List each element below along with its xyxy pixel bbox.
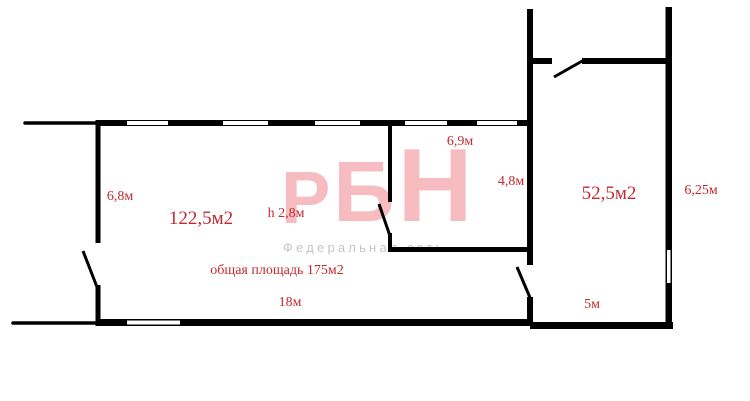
floorplan-canvas: Р Б Н Федеральная сеть	[0, 0, 750, 401]
label-room-right-area: 52,5м2	[582, 183, 637, 205]
label-room-main-width: 6,8м	[107, 189, 133, 205]
exterior-walls	[96, 7, 674, 329]
label-room-main-length: 18м	[279, 295, 302, 311]
extension-lines	[13, 123, 98, 323]
label-room-right-width: 5м	[584, 297, 600, 313]
label-total-area: общая площадь 175м2	[210, 263, 343, 279]
label-room-mid-depth: 4,8м	[498, 174, 524, 190]
label-ceiling-height: h 2,8м	[268, 206, 305, 222]
label-room-mid-width: 6,9м	[447, 134, 473, 150]
label-room-main-area: 122,5м2	[169, 208, 233, 230]
label-room-right-height: 6,25м	[684, 183, 717, 199]
